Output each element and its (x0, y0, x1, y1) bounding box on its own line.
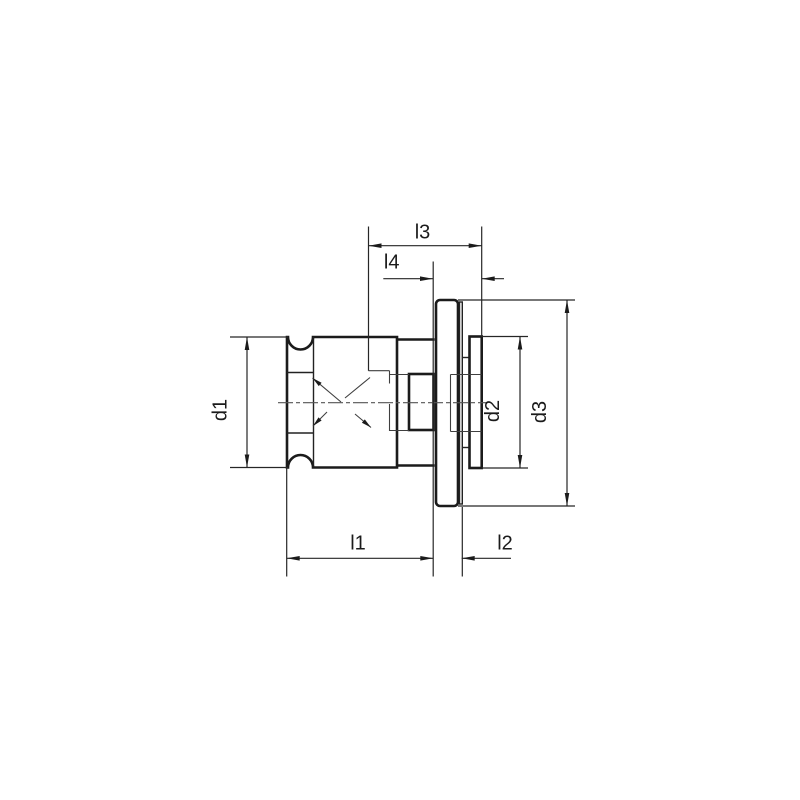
dim-label-l4: l4 (384, 252, 400, 274)
drive-square (409, 374, 434, 430)
drawing-canvas: l3 l4 l1 l2 d1 d2 d3 (0, 0, 800, 800)
dim-label-l2: l2 (497, 533, 513, 555)
dim-label-l1: l1 (350, 533, 366, 555)
dim-label-d3: d3 (529, 401, 551, 423)
technical-drawing-svg: l3 l4 l1 l2 d1 d2 d3 (0, 0, 800, 800)
dim-label-d1: d1 (210, 399, 232, 421)
internal-square-lines (369, 371, 482, 432)
dim-label-l3: l3 (415, 222, 431, 244)
dim-label-d2: d2 (482, 400, 504, 422)
dimension-labels: l3 l4 l1 l2 d1 d2 d3 (210, 222, 552, 555)
dimension-lines (230, 227, 575, 577)
